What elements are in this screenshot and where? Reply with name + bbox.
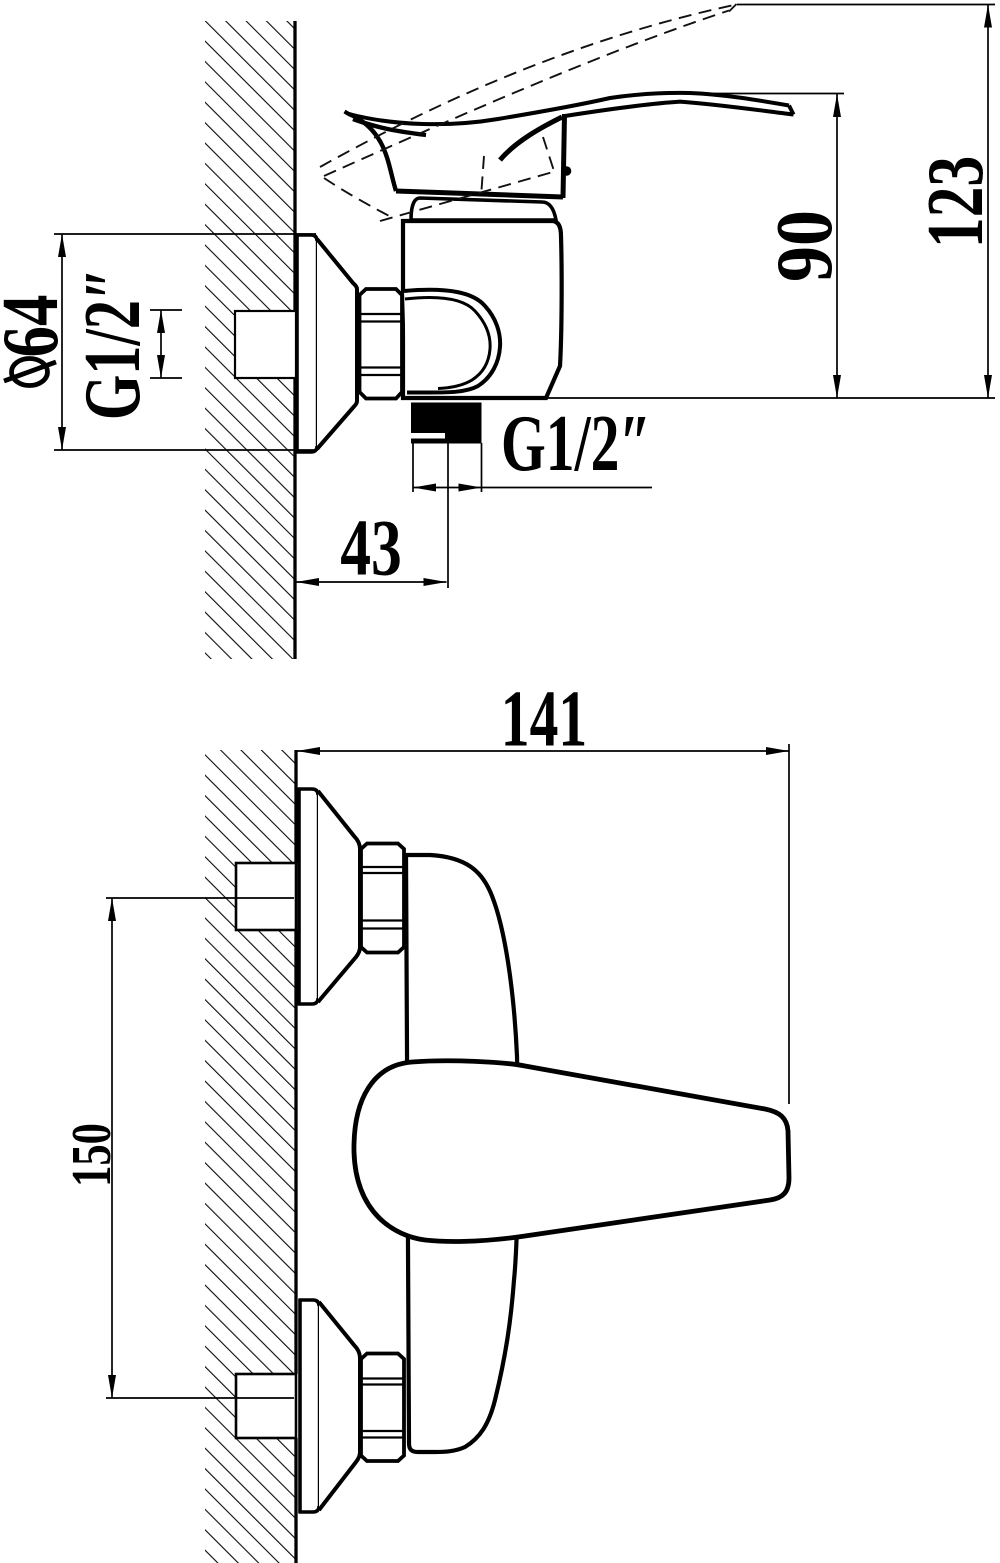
svg-text:150: 150 [60, 1123, 122, 1187]
svg-text:64: 64 [0, 295, 75, 358]
svg-text:90: 90 [761, 210, 849, 282]
svg-text:G1/2″: G1/2″ [69, 268, 157, 420]
svg-text:43: 43 [340, 504, 402, 593]
svg-text:141: 141 [501, 675, 587, 763]
svg-text:G1/2″: G1/2″ [501, 400, 651, 488]
svg-text:123: 123 [911, 156, 1000, 248]
